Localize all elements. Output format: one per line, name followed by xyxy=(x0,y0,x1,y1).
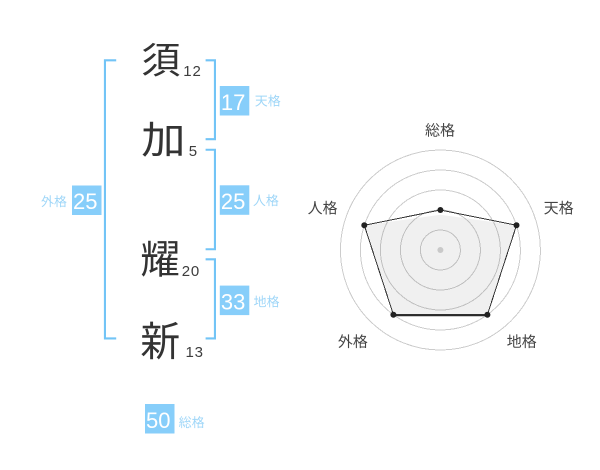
svg-text:13: 13 xyxy=(186,344,204,361)
svg-text:33: 33 xyxy=(221,289,245,314)
svg-text:25: 25 xyxy=(221,189,245,214)
svg-text:17: 17 xyxy=(221,90,245,115)
svg-text:12: 12 xyxy=(183,63,201,80)
svg-text:5: 5 xyxy=(189,143,197,160)
svg-text:25: 25 xyxy=(73,189,97,214)
svg-text:20: 20 xyxy=(182,263,200,280)
svg-text:50: 50 xyxy=(146,408,170,433)
